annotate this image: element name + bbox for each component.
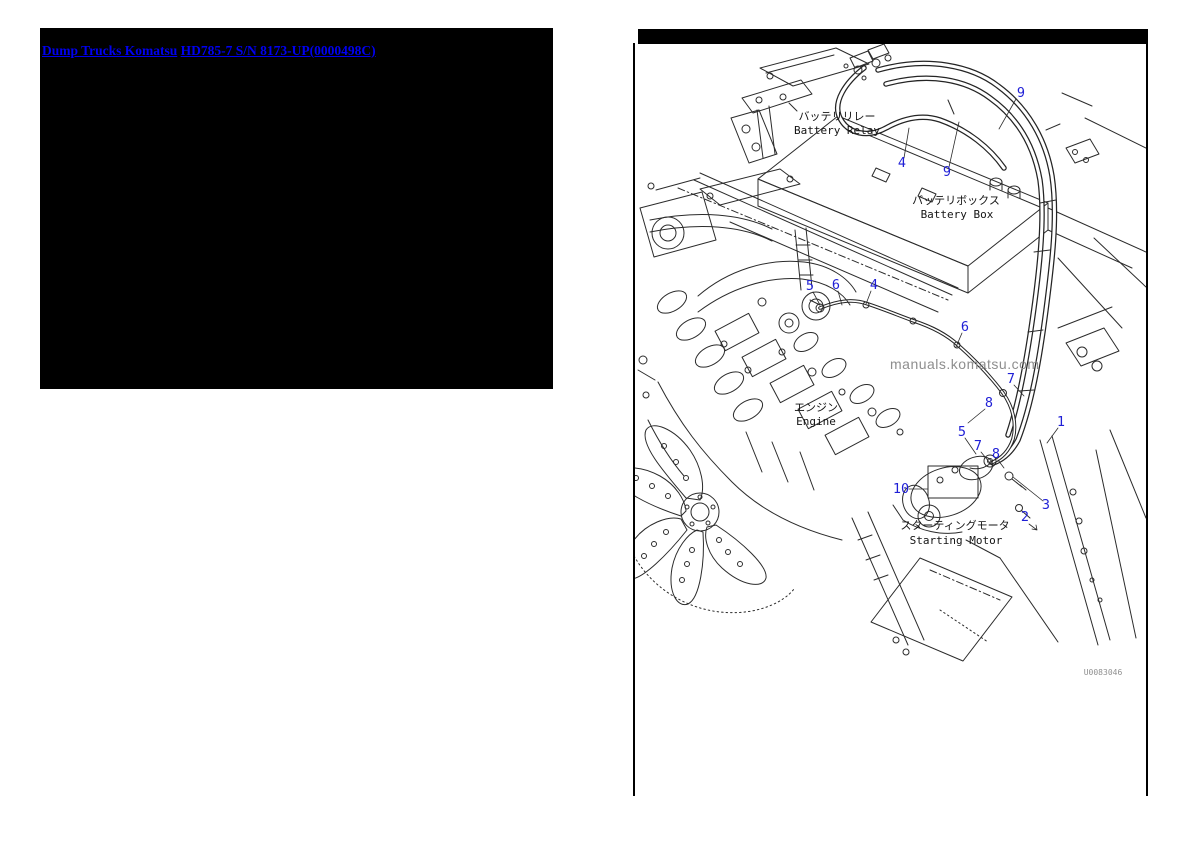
breadcrumb-panel: Dump Trucks Komatsu HD785-7 S/N 8173-UP(… [40,28,553,389]
label-battery-box-jp: バッテリボックス [912,194,1000,207]
callout-1: 1 [1057,414,1065,430]
label-engine-jp: エンジン [794,401,838,414]
callout-5-lower: 5 [958,424,966,440]
breadcrumb-link-category[interactable]: Dump Trucks Komatsu [42,43,177,58]
label-battery-relay-en: Battery Relay [794,124,880,137]
engine-harness-drawing [810,300,1015,469]
callout-10: 10 [893,481,909,497]
breadcrumb-link-model[interactable]: HD785-7 S/N 8173-UP(0000498C) [181,43,376,58]
label-engine-en: Engine [796,415,836,428]
drawing-panel-right-rule [1146,40,1148,796]
callout-8-lower: 8 [992,446,1000,462]
callout-4-mid: 4 [870,277,878,293]
callout-7-upper: 7 [1007,371,1015,387]
callout-9-top: 9 [1017,85,1025,101]
callout-7-lower: 7 [974,438,982,454]
label-battery-relay-jp: バッテリリレー [799,110,876,123]
callout-9-mid: 9 [943,164,951,180]
callout-3: 3 [1042,497,1050,513]
drawing-panel-top-bar [638,29,1148,44]
callout-6-upper: 6 [832,277,840,293]
callout-4-upper: 4 [898,155,906,171]
label-starting-motor-jp: スターティングモータ [900,518,1009,532]
label-battery-box-en: Battery Box [921,208,994,221]
label-starting-motor-en: Starting Motor [910,534,1003,547]
parts-diagram: バッテリリレー Battery Relay バッテリボックス Battery B… [635,44,1146,796]
callout-2: 2 [1021,509,1029,525]
watermark: manuals.komatsu.com [890,356,1040,372]
callout-5-upper: 5 [806,278,814,294]
battery-cables-drawing [838,44,1060,463]
page: { "breadcrumb": { "panel_background": "#… [0,0,1190,842]
engine-drawing [638,169,903,540]
fan-drawing [635,426,794,613]
breadcrumb: Dump Trucks Komatsu HD785-7 S/N 8173-UP(… [42,43,551,58]
callout-numbers: 9 4 9 5 6 4 6 7 8 1 5 7 8 10 3 2 [806,85,1065,525]
frame-drawing [1040,93,1146,645]
callout-8-upper: 8 [985,395,993,411]
callout-6-lower: 6 [961,319,969,335]
drawing-number: U0083046 [1084,668,1123,677]
